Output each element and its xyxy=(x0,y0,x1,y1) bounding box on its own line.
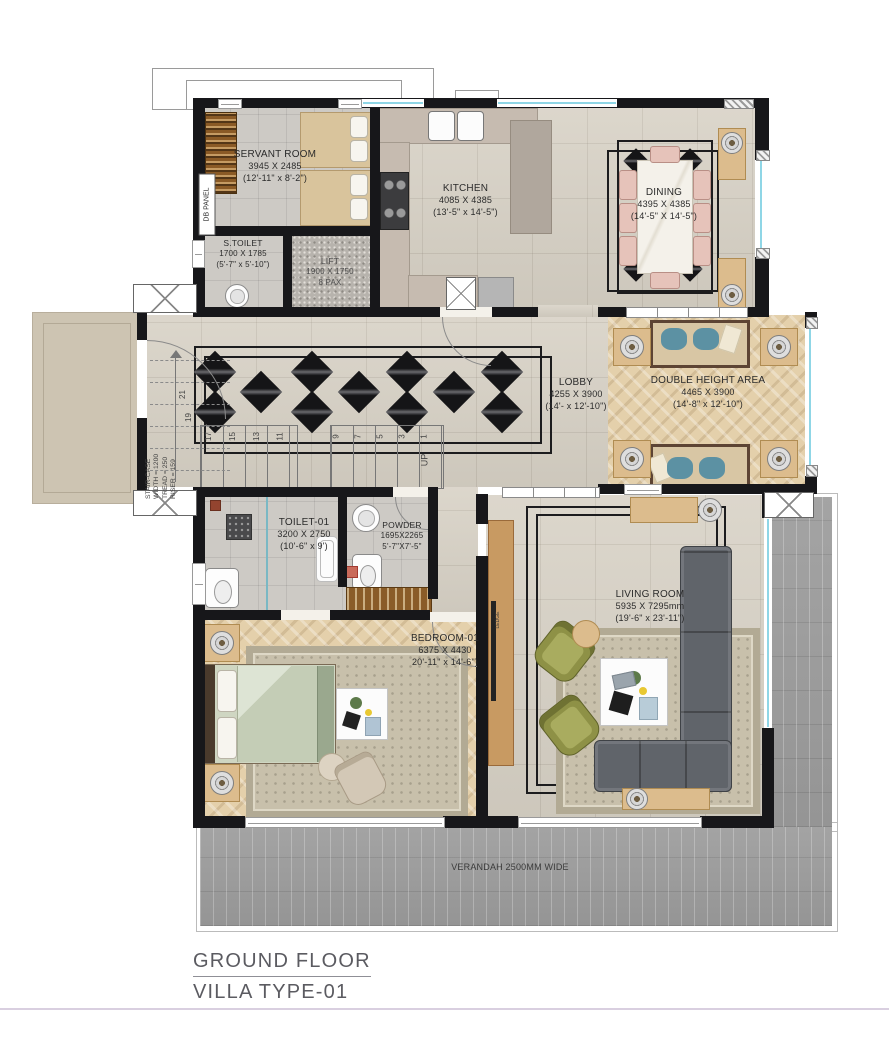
bed-headboard xyxy=(205,665,215,763)
room-dim-mm: 5935 X 7295mm xyxy=(570,601,730,613)
wall xyxy=(283,232,292,315)
wall xyxy=(193,487,393,497)
room-name: LIVING ROOM xyxy=(570,588,730,601)
bed-runner xyxy=(317,666,334,762)
room-dim-ft: (19'-6" x 23'-11") xyxy=(570,613,730,625)
ledge-text: LEDGE xyxy=(495,612,501,629)
bed-pillow xyxy=(217,670,237,712)
entry-porch xyxy=(32,312,142,504)
shower-glass-partition xyxy=(266,497,268,610)
ground-floor-text: GROUND FLOOR xyxy=(193,950,371,972)
room-dim-ft: (14'-5" X 14'-5") xyxy=(612,211,716,223)
dishwasher xyxy=(446,277,476,310)
washbasin xyxy=(225,284,249,308)
stair-spec-line: STAIR-CASE xyxy=(145,413,153,499)
stair-number: 17 xyxy=(204,432,213,441)
wall xyxy=(193,98,769,108)
table-lamp xyxy=(620,335,644,359)
bed-pillow xyxy=(350,140,368,162)
bed-pillow xyxy=(350,116,368,138)
verandah-south xyxy=(200,826,832,926)
double-height-sliding-door xyxy=(626,307,748,318)
kitchen-label: KITCHEN 4085 X 4385 (13'-5" x 14'-5") xyxy=(408,182,523,219)
stair-up-label: UP xyxy=(419,454,429,467)
bed-pillow xyxy=(350,174,368,196)
room-dim-ft: 5'-7"X7'-5" xyxy=(372,542,432,553)
powder-label: POWDER 1695X2265 5'-7"X7'-5" xyxy=(372,520,432,552)
wall xyxy=(598,484,624,494)
stair-spec-line: WIDTH = 1200 xyxy=(153,413,161,499)
magazine-decor xyxy=(365,717,381,736)
room-dim-mm: 4255 X 3900 xyxy=(538,389,614,401)
villa-type-text: VILLA TYPE-01 xyxy=(193,981,348,1003)
room-name: BEDROOM-01 xyxy=(384,632,506,645)
wall xyxy=(598,307,626,317)
room-dim-mm: 3945 X 2485 xyxy=(210,161,340,173)
room-dim-mm: 1900 X 1750 xyxy=(298,267,362,278)
bedroom-coffee-table xyxy=(336,688,388,740)
staircase-spec: STAIR-CASE WIDTH = 1200 TREAD = 250 RISE… xyxy=(145,413,181,499)
stair-number: 3 xyxy=(398,434,407,438)
living-window-east xyxy=(764,518,772,728)
stair-number: 15 xyxy=(228,432,237,441)
stove xyxy=(380,172,409,230)
passage-floor xyxy=(538,305,598,317)
living-coffee-table xyxy=(600,658,668,726)
plan-title-line2: VILLA TYPE-01 xyxy=(193,981,348,1004)
stair-number: 11 xyxy=(276,432,285,440)
servant-room-label: SERVANT ROOM 3945 X 2485 (12'-11" x 8'-2… xyxy=(210,148,340,185)
stair-spec-line: RISER = 159 xyxy=(170,413,178,499)
bed-pillow xyxy=(350,198,368,220)
servant-window xyxy=(338,99,362,109)
servant-window xyxy=(218,99,242,109)
room-name: TOILET-01 xyxy=(242,516,366,529)
room-name: S.TOILET xyxy=(202,238,284,249)
wall-hatch xyxy=(756,150,770,161)
cabinet-lamp xyxy=(721,132,743,154)
living-sideboard xyxy=(630,497,698,523)
books-decor xyxy=(612,671,637,690)
room-dim-mm: 1695X2265 xyxy=(372,531,432,542)
powder-mat xyxy=(346,566,358,578)
tray-decor xyxy=(342,711,361,730)
wall xyxy=(193,610,281,620)
stair-number: 7 xyxy=(354,434,363,438)
living-window-south xyxy=(518,817,702,828)
bedroom-window xyxy=(245,817,445,828)
stair-number: 9 xyxy=(332,434,341,438)
wall-hatch xyxy=(806,465,818,477)
room-dim-mm: 4465 X 3900 xyxy=(620,387,796,399)
room-name: LOBBY xyxy=(538,376,614,389)
fridge xyxy=(478,277,514,311)
room-dim-ft: 20'-11" x 14'-6") xyxy=(384,657,506,669)
nightstand-lamp xyxy=(210,631,234,655)
main-entrance-opening xyxy=(137,340,147,418)
wall xyxy=(193,603,205,828)
wall xyxy=(746,307,769,317)
nightstand-lamp xyxy=(210,771,234,795)
dining-window-east xyxy=(757,160,765,257)
dining-chair xyxy=(650,146,680,163)
room-name: KITCHEN xyxy=(408,182,523,195)
wc-toilet1 xyxy=(205,568,239,608)
room-dim-mm: 4085 X 4385 xyxy=(408,195,523,207)
sofa-cushion xyxy=(699,457,725,479)
dining-chair xyxy=(693,236,711,266)
sofa-throw xyxy=(717,324,742,354)
db-panel: DB PANEL xyxy=(199,174,216,236)
wall xyxy=(700,816,772,828)
stair-spec-line: TREAD = 250 xyxy=(162,413,170,499)
room-name: DINING xyxy=(612,186,716,199)
sofa-cushion xyxy=(661,328,687,350)
bed-pillow xyxy=(217,717,237,759)
room-name: LIFT xyxy=(298,256,362,267)
plant-decor xyxy=(350,697,362,709)
sofa-cushion xyxy=(667,457,693,479)
kitchen-sink xyxy=(428,111,455,141)
shaft-box xyxy=(133,284,197,313)
db-panel-label: DB PANEL xyxy=(204,187,211,221)
stair-number: 5 xyxy=(376,434,385,438)
ledge-label: LEDGE xyxy=(495,605,503,635)
sectional-sofa-seat xyxy=(594,740,732,792)
room-dim-ft: (14'- x 12'-10") xyxy=(538,401,614,413)
double-height-door xyxy=(624,484,662,495)
lift-capacity: 8 PAX xyxy=(298,278,362,289)
bed xyxy=(204,664,336,764)
dining-chair xyxy=(619,236,637,266)
living-sliding-door xyxy=(502,487,600,498)
bed-duvet xyxy=(237,666,320,762)
cabinet-lamp xyxy=(721,284,743,306)
candle-decor xyxy=(365,709,372,716)
wall xyxy=(193,307,440,317)
tray-decor xyxy=(609,691,634,716)
bottom-divider xyxy=(0,1008,889,1010)
sofa xyxy=(650,320,750,368)
stair-number: 21 xyxy=(178,390,187,399)
toilet1-window xyxy=(192,563,206,605)
room-dim-ft: (10'-6" x 9') xyxy=(242,541,366,553)
room-dim-mm: 4395 X 4385 xyxy=(612,199,716,211)
shower-drain xyxy=(210,500,221,511)
room-name: SERVANT ROOM xyxy=(210,148,340,161)
kitchen-sink xyxy=(457,111,484,141)
room-name: POWDER xyxy=(372,520,432,531)
floor-plan-canvas: VERANDAH 2500MM WIDE xyxy=(0,0,889,1064)
room-dim-mm: 6375 X 4430 xyxy=(384,645,506,657)
wall xyxy=(492,307,538,317)
lift-label: LIFT 1900 X 1750 8 PAX xyxy=(298,256,362,288)
table-lamp xyxy=(620,447,644,471)
verandah-name: VERANDAH 2500MM WIDE xyxy=(420,862,600,874)
table-lamp xyxy=(767,335,791,359)
candle-decor xyxy=(639,687,647,695)
room-dim-ft: (14'-8" x 12'-10") xyxy=(620,399,796,411)
wall xyxy=(370,98,380,317)
room-dim-ft: (5'-7" x 5'-10") xyxy=(202,260,284,271)
toilet1-label: TOILET-01 3200 X 2750 (10'-6" x 9') xyxy=(242,516,366,553)
wall xyxy=(137,312,147,340)
bedroom-label: BEDROOM-01 6375 X 4430 20'-11" x 14'-6") xyxy=(384,632,506,669)
wall-hatch xyxy=(806,317,818,329)
speaker xyxy=(698,498,722,522)
toilet1-door-opening xyxy=(281,610,330,620)
stair-number: 1 xyxy=(420,434,429,438)
double-height-label: DOUBLE HEIGHT AREA 4465 X 3900 (14'-8" x… xyxy=(620,374,796,411)
porch-inner-line xyxy=(43,323,131,493)
room-dim-mm: 3200 X 2750 xyxy=(242,529,366,541)
wall xyxy=(476,494,488,524)
wall-hatch xyxy=(724,99,754,109)
s-toilet-label: S.TOILET 1700 X 1785 (5'-7" x 5'-10") xyxy=(202,238,284,270)
double-height-window xyxy=(806,328,814,476)
verandah-east xyxy=(770,497,832,827)
stair-number: 19 xyxy=(184,413,193,422)
shaft-box xyxy=(764,492,814,518)
speaker xyxy=(626,788,648,810)
wall xyxy=(330,610,430,620)
sofa-cushion xyxy=(693,328,719,350)
powder-door-opening xyxy=(393,487,428,497)
living-label: LIVING ROOM 5935 X 7295mm (19'-6" x 23'-… xyxy=(570,588,730,625)
lobby-label: LOBBY 4255 X 3900 (14'- x 12'-10") xyxy=(538,376,614,413)
room-dim-ft: (13'-5" x 14'-5") xyxy=(408,207,523,219)
bedroom-door-opening xyxy=(430,612,476,622)
kitchen-window xyxy=(362,99,424,107)
dining-label: DINING 4395 X 4385 (14'-5" X 14'-5") xyxy=(612,186,716,223)
wall-hatch xyxy=(756,248,770,259)
dining-window-top xyxy=(497,99,617,107)
magazine-decor xyxy=(639,697,658,720)
room-dim-mm: 1700 X 1785 xyxy=(202,249,284,260)
verandah-label: VERANDAH 2500MM WIDE xyxy=(420,862,600,874)
wall xyxy=(762,728,774,828)
room-dim-ft: (12'-11" x 8'-2") xyxy=(210,173,340,185)
room-name: DOUBLE HEIGHT AREA xyxy=(620,374,796,387)
stair-number: 13 xyxy=(252,432,261,441)
wall xyxy=(476,556,488,828)
plan-title-line1: GROUND FLOOR xyxy=(193,950,371,977)
dining-chair xyxy=(650,272,680,289)
table-lamp xyxy=(767,447,791,471)
